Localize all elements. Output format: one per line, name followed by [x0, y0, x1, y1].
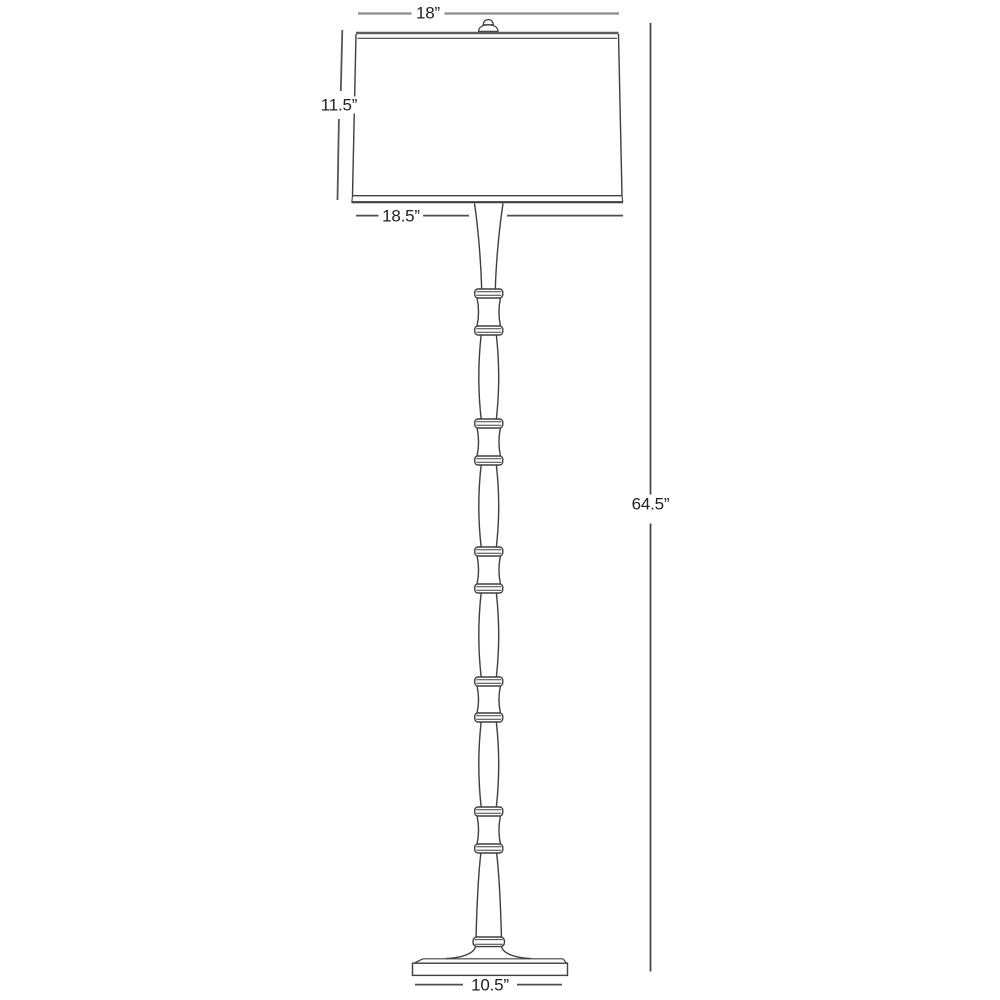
bamboo-joint-ring — [475, 456, 503, 465]
shade-left-edge — [353, 34, 357, 196]
column-barrel-right — [496, 335, 498, 419]
dim-line-shade-height — [338, 30, 343, 200]
column-node-segment-left — [477, 298, 479, 326]
finial-nub — [483, 20, 493, 25]
column-node-segment-right — [499, 556, 501, 584]
column-barrel-left — [479, 722, 481, 807]
column-bottom-left — [476, 853, 481, 937]
column-node-segment-left — [477, 686, 479, 713]
column-barrel-left — [479, 593, 481, 677]
dimension-label-shade-top-width: 18” — [413, 5, 443, 22]
column-node-segment-left — [477, 816, 479, 844]
lamp-spec-diagram: 18” 11.5” 18.5” 64.5” 10.5” — [0, 0, 1000, 1000]
base-plinth — [413, 963, 568, 975]
base-flare-left — [446, 947, 476, 959]
lamp-column — [473, 204, 504, 947]
lamp-base — [413, 947, 568, 976]
lamp-finial-icon — [479, 20, 498, 32]
bamboo-joint-ring — [475, 677, 503, 686]
shade-right-edge — [619, 34, 623, 196]
column-node-segment-left — [477, 428, 479, 456]
bamboo-joint-ring — [475, 844, 503, 853]
bamboo-joint-ring — [475, 713, 503, 722]
column-node-segment-right — [499, 298, 501, 326]
dimension-label-shade-bottom-width: 18.5” — [379, 207, 423, 224]
lamp-shade — [352, 33, 624, 202]
bamboo-joint-ring — [475, 326, 503, 335]
bamboo-joint-ring — [475, 289, 503, 298]
column-barrel-right — [496, 722, 498, 807]
dimension-label-shade-height: 11.5” — [318, 97, 361, 114]
lamp-line-art — [0, 0, 1000, 1000]
column-node-segment-right — [499, 428, 501, 456]
bamboo-joint-ring — [475, 419, 503, 428]
dimension-label-overall-height: 64.5” — [629, 496, 673, 513]
dimension-lines — [338, 14, 651, 985]
column-node-segment-left — [477, 556, 479, 584]
dimension-label-base-width: 10.5” — [468, 977, 512, 994]
finial-dome — [479, 25, 498, 32]
column-node-segment-right — [499, 816, 501, 844]
column-barrel-right — [496, 593, 498, 677]
base-collar-ring — [473, 937, 504, 947]
column-barrel-left — [479, 335, 481, 419]
column-neck-right — [495, 204, 503, 291]
column-barrel-left — [479, 465, 481, 547]
column-bottom-right — [497, 853, 502, 937]
bamboo-joint-ring — [475, 547, 503, 556]
base-flare-right — [502, 947, 532, 959]
bamboo-joint-ring — [475, 807, 503, 816]
column-node-segment-right — [499, 686, 501, 713]
bamboo-joint-ring — [475, 584, 503, 593]
column-neck-left — [475, 204, 482, 291]
column-barrel-right — [496, 465, 498, 547]
